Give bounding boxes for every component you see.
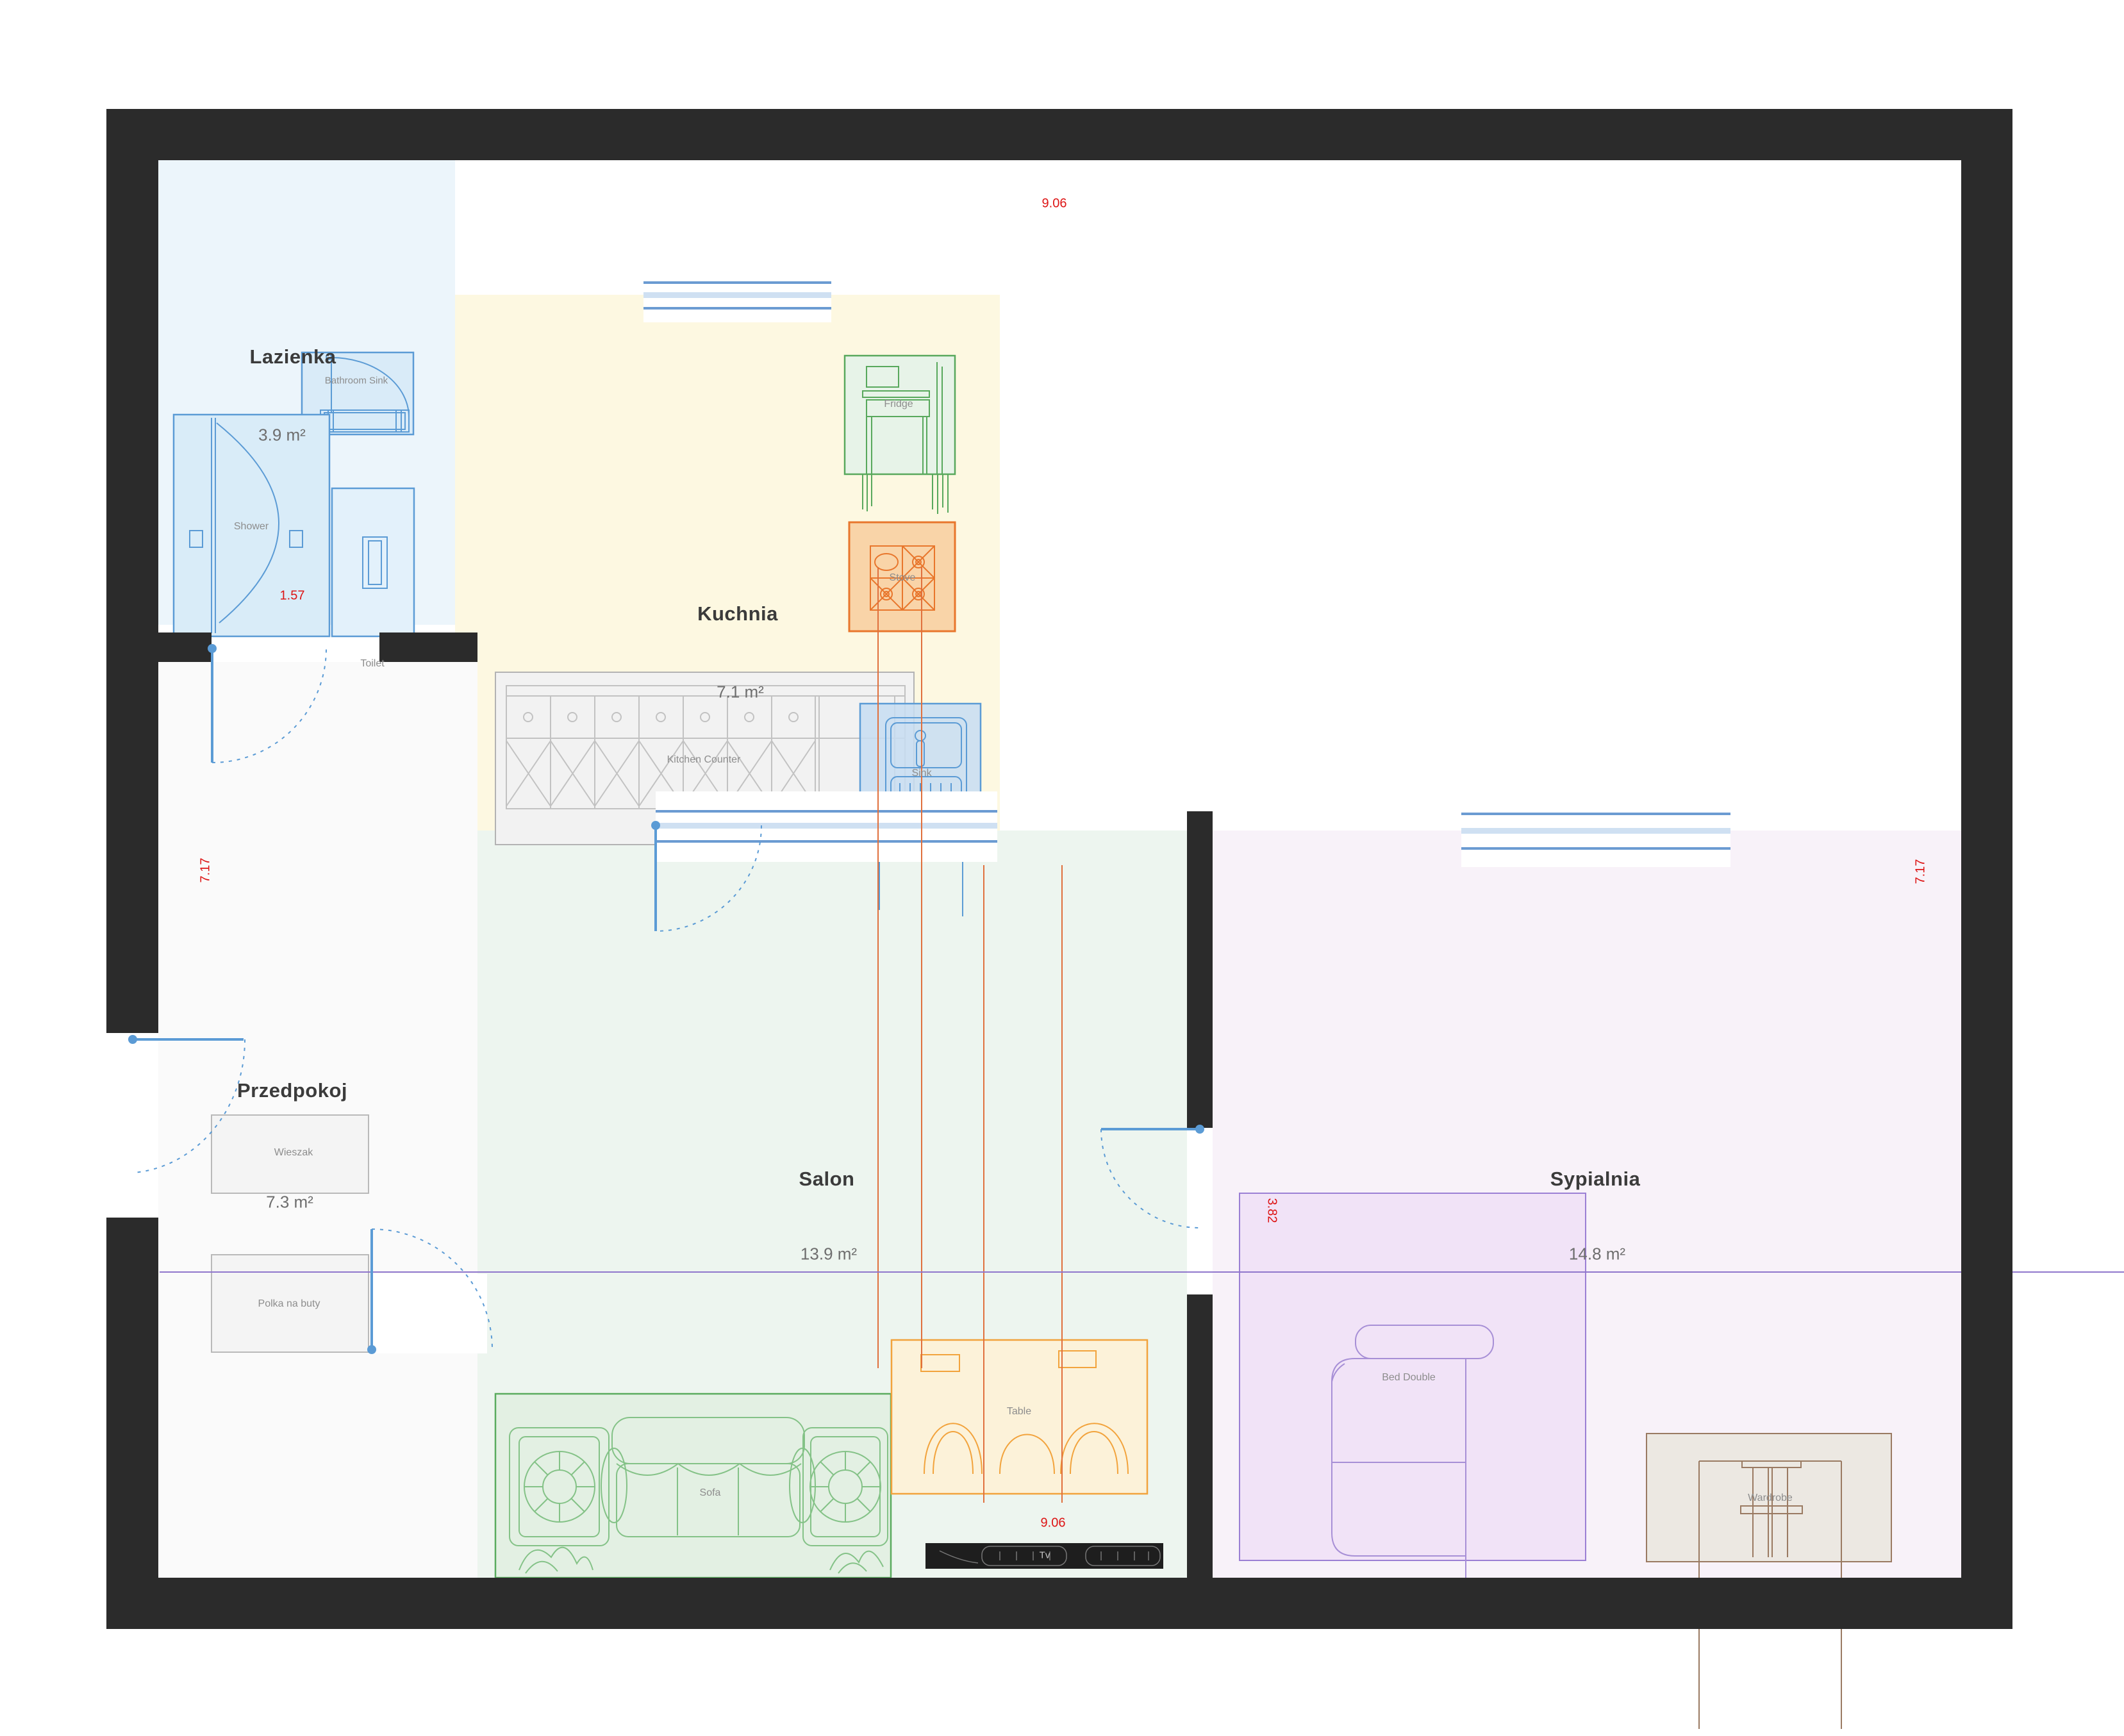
window-bedroom[interactable] xyxy=(1461,795,1730,867)
floor-plan-canvas: Lazienka 3.9 m² Kuchnia 7.1 m² Przedpoko… xyxy=(0,0,2124,1736)
wieszak-box[interactable] xyxy=(212,1115,369,1193)
sofa-zone[interactable] xyxy=(495,1394,891,1578)
door-opening-patch xyxy=(373,1274,487,1353)
shower[interactable] xyxy=(174,415,329,636)
shoe-shelf-box[interactable] xyxy=(212,1255,369,1352)
table-zone[interactable] xyxy=(892,1340,1147,1494)
fridge[interactable] xyxy=(845,356,955,474)
stove[interactable] xyxy=(849,522,955,631)
window-kitchen-salon[interactable] xyxy=(656,791,997,862)
toilet[interactable] xyxy=(332,488,414,636)
bed-zone[interactable] xyxy=(1240,1193,1586,1578)
window-kitchen-top[interactable] xyxy=(643,279,831,322)
tv[interactable] xyxy=(925,1543,1163,1569)
